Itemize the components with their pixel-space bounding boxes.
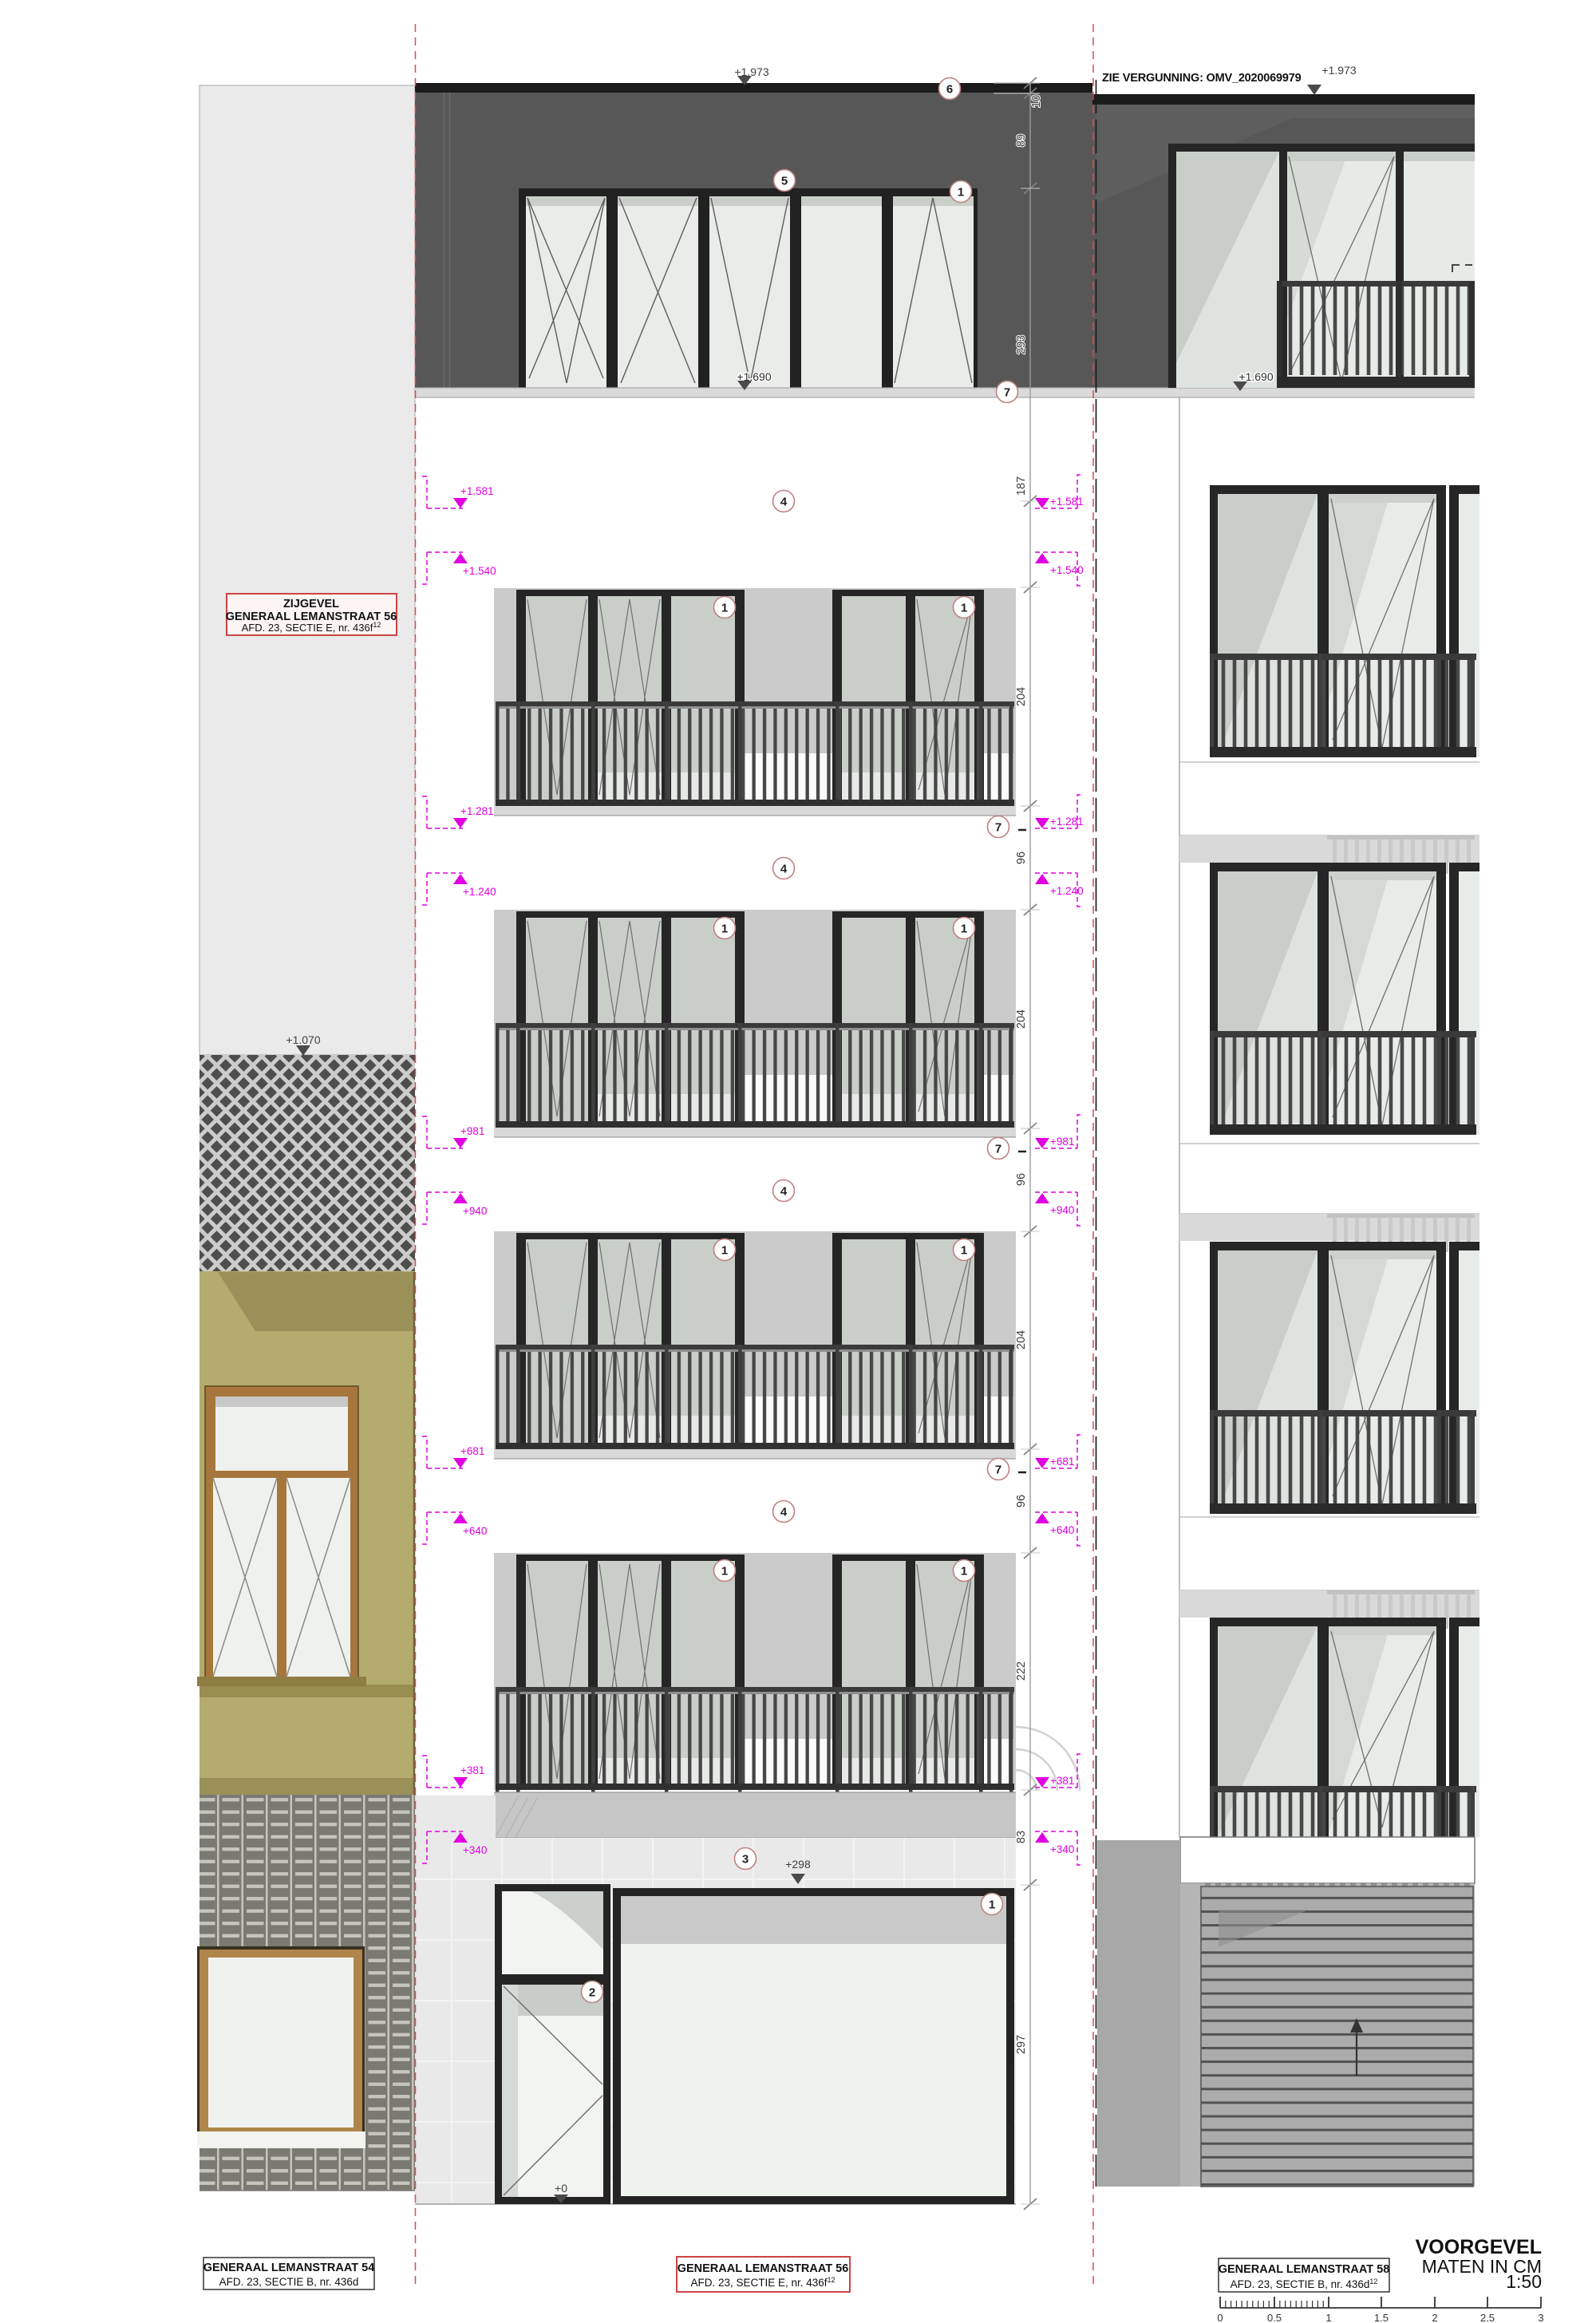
- svg-text:204: 204: [1015, 1330, 1028, 1349]
- svg-text:+1.281: +1.281: [1050, 816, 1084, 828]
- svg-text:+381: +381: [1050, 1775, 1074, 1787]
- svg-text:10: 10: [1030, 95, 1043, 108]
- svg-text:+1.540: +1.540: [463, 565, 496, 577]
- svg-text:GENERAAL LEMANSTRAAT 54: GENERAAL LEMANSTRAAT 54: [203, 2262, 375, 2274]
- svg-text:1:50: 1:50: [1506, 2271, 1542, 2292]
- svg-text:2: 2: [589, 1986, 595, 2000]
- svg-text:222: 222: [1015, 1661, 1028, 1681]
- svg-text:+340: +340: [463, 1844, 487, 1856]
- svg-text:1: 1: [721, 1244, 728, 1258]
- svg-text:+298: +298: [785, 1858, 811, 1871]
- svg-text:1: 1: [961, 602, 967, 615]
- svg-text:+381: +381: [460, 1764, 484, 1776]
- svg-text:+681: +681: [460, 1445, 484, 1457]
- svg-text:4: 4: [780, 496, 788, 509]
- svg-text:1: 1: [958, 186, 964, 200]
- svg-text:2.5: 2.5: [1480, 2312, 1495, 2323]
- svg-text:297: 297: [1015, 2035, 1028, 2054]
- svg-text:204: 204: [1015, 1009, 1028, 1029]
- svg-text:1: 1: [961, 922, 967, 936]
- svg-text:GENERAAL LEMANSTRAAT 56: GENERAAL LEMANSTRAAT 56: [678, 2262, 849, 2275]
- svg-text:6: 6: [946, 83, 953, 97]
- svg-text:+1.581: +1.581: [1050, 496, 1084, 508]
- svg-text:1.5: 1.5: [1374, 2312, 1389, 2323]
- svg-text:+1.581: +1.581: [460, 485, 494, 497]
- svg-text:VOORGEVEL: VOORGEVEL: [1416, 2236, 1542, 2258]
- svg-text:+1.070: +1.070: [286, 1033, 320, 1046]
- svg-text:4: 4: [780, 1506, 788, 1519]
- svg-text:AFD. 23, SECTIE B, nr. 436d12: AFD. 23, SECTIE B, nr. 436d12: [1231, 2278, 1378, 2290]
- svg-text:4: 4: [780, 863, 788, 876]
- svg-text:1: 1: [721, 1565, 728, 1578]
- svg-text:+1.240: +1.240: [1050, 885, 1084, 897]
- svg-text:AFD. 23, SECTIE B, nr. 436d: AFD. 23, SECTIE B, nr. 436d: [219, 2276, 359, 2288]
- svg-text:187: 187: [1015, 476, 1028, 496]
- svg-text:+1.540: +1.540: [1050, 564, 1084, 576]
- svg-text:ZIE VERGUNNING: OMV_2020069979: ZIE VERGUNNING: OMV_2020069979: [1102, 72, 1302, 85]
- svg-text:+640: +640: [463, 1525, 487, 1537]
- svg-text:+340: +340: [1050, 1843, 1074, 1855]
- svg-text:+640: +640: [1050, 1524, 1074, 1536]
- svg-text:AFD. 23, SECTIE E, nr. 436f12: AFD. 23, SECTIE E, nr. 436f12: [690, 2276, 835, 2289]
- svg-text:0.5: 0.5: [1267, 2312, 1282, 2323]
- svg-text:1: 1: [989, 1898, 995, 1912]
- svg-text:+0: +0: [555, 2182, 567, 2195]
- svg-text:+981: +981: [460, 1125, 484, 1137]
- svg-text:7: 7: [995, 821, 1001, 835]
- svg-text:5: 5: [781, 175, 788, 188]
- svg-text:83: 83: [1015, 1831, 1028, 1843]
- svg-text:96: 96: [1015, 1495, 1028, 1507]
- svg-text:1: 1: [721, 922, 728, 936]
- svg-text:1: 1: [961, 1244, 967, 1258]
- svg-text:4: 4: [780, 1185, 788, 1199]
- svg-text:1: 1: [1325, 2312, 1331, 2323]
- svg-text:1: 1: [721, 602, 728, 615]
- svg-text:1: 1: [961, 1565, 967, 1578]
- svg-text:+1.240: +1.240: [463, 886, 496, 898]
- svg-text:89: 89: [1015, 134, 1028, 147]
- svg-text:+981: +981: [1050, 1136, 1074, 1148]
- svg-text:204: 204: [1015, 687, 1028, 706]
- svg-text:96: 96: [1015, 851, 1028, 864]
- svg-text:7: 7: [995, 1464, 1001, 1477]
- svg-text:2: 2: [1432, 2312, 1437, 2323]
- svg-text:+681: +681: [1050, 1456, 1074, 1468]
- svg-text:96: 96: [1015, 1173, 1028, 1186]
- svg-text:7: 7: [1004, 386, 1010, 400]
- svg-text:3: 3: [1538, 2312, 1543, 2323]
- svg-text:+1.690: +1.690: [1238, 370, 1273, 383]
- svg-text:+940: +940: [1050, 1204, 1074, 1216]
- svg-text:AFD. 23, SECTIE E, nr. 436f12: AFD. 23, SECTIE E, nr. 436f12: [242, 621, 381, 634]
- svg-text:0: 0: [1217, 2312, 1223, 2323]
- svg-text:GENERAAL LEMANSTRAAT 58: GENERAAL LEMANSTRAAT 58: [1219, 2263, 1390, 2276]
- svg-text:7: 7: [995, 1143, 1001, 1156]
- svg-text:+940: +940: [463, 1205, 487, 1217]
- svg-text:+1.281: +1.281: [460, 805, 494, 817]
- svg-text:+1.973: +1.973: [1321, 64, 1356, 77]
- svg-text:293: 293: [1015, 335, 1028, 354]
- svg-text:ZIJGEVEL: ZIJGEVEL: [283, 598, 339, 610]
- svg-text:3: 3: [742, 1853, 749, 1867]
